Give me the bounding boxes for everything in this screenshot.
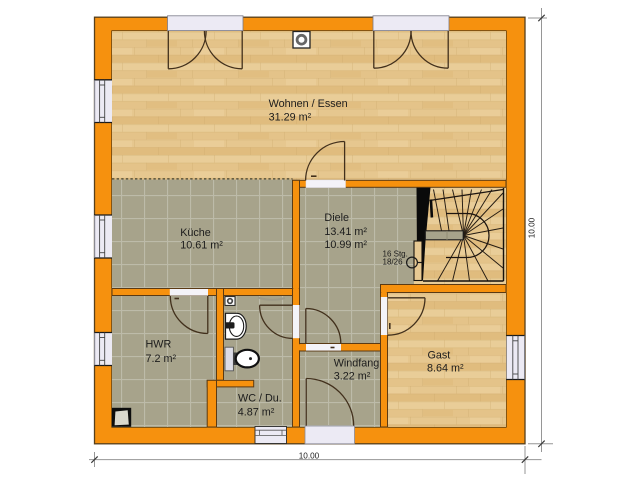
svg-text:Diele: Diele xyxy=(324,212,349,224)
svg-text:10.00: 10.00 xyxy=(299,452,320,461)
svg-text:HWR: HWR xyxy=(146,339,172,351)
svg-text:4.87 m²: 4.87 m² xyxy=(238,406,275,418)
svg-text:13.41 m²: 13.41 m² xyxy=(324,226,367,238)
svg-text:8.64 m²: 8.64 m² xyxy=(427,363,464,375)
svg-text:10.99 m²: 10.99 m² xyxy=(324,239,367,251)
svg-text:Küche: Küche xyxy=(180,227,211,239)
svg-text:31.29 m²: 31.29 m² xyxy=(269,111,312,123)
svg-text:Wohnen / Essen: Wohnen / Essen xyxy=(269,98,348,110)
svg-text:WC / Du.: WC / Du. xyxy=(238,393,282,405)
svg-text:7.2 m²: 7.2 m² xyxy=(146,353,177,365)
svg-text:3.22 m²: 3.22 m² xyxy=(334,371,371,383)
svg-text:Windfang: Windfang xyxy=(334,357,380,369)
svg-text:18/26: 18/26 xyxy=(383,258,404,267)
svg-text:Gast: Gast xyxy=(428,349,451,361)
svg-text:10.61 m²: 10.61 m² xyxy=(180,239,223,251)
svg-text:10.00: 10.00 xyxy=(528,217,537,238)
